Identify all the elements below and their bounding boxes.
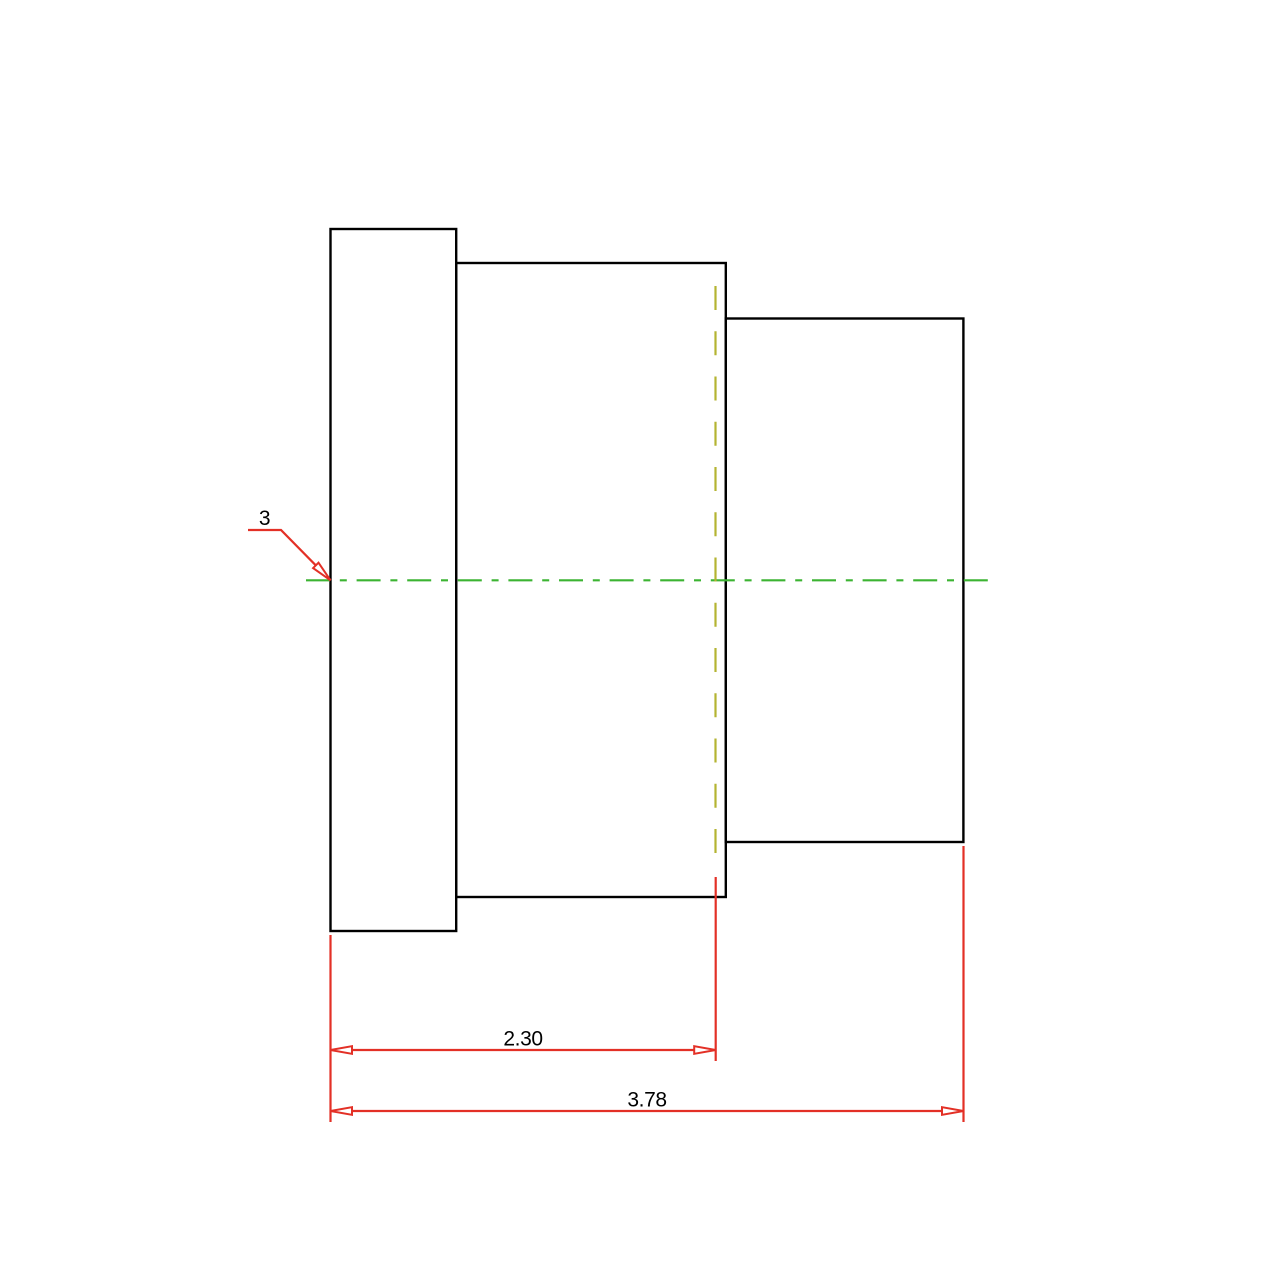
svg-text:2.30: 2.30 [503, 1028, 542, 1051]
svg-text:3.78: 3.78 [627, 1089, 666, 1112]
svg-text:3: 3 [259, 507, 270, 530]
